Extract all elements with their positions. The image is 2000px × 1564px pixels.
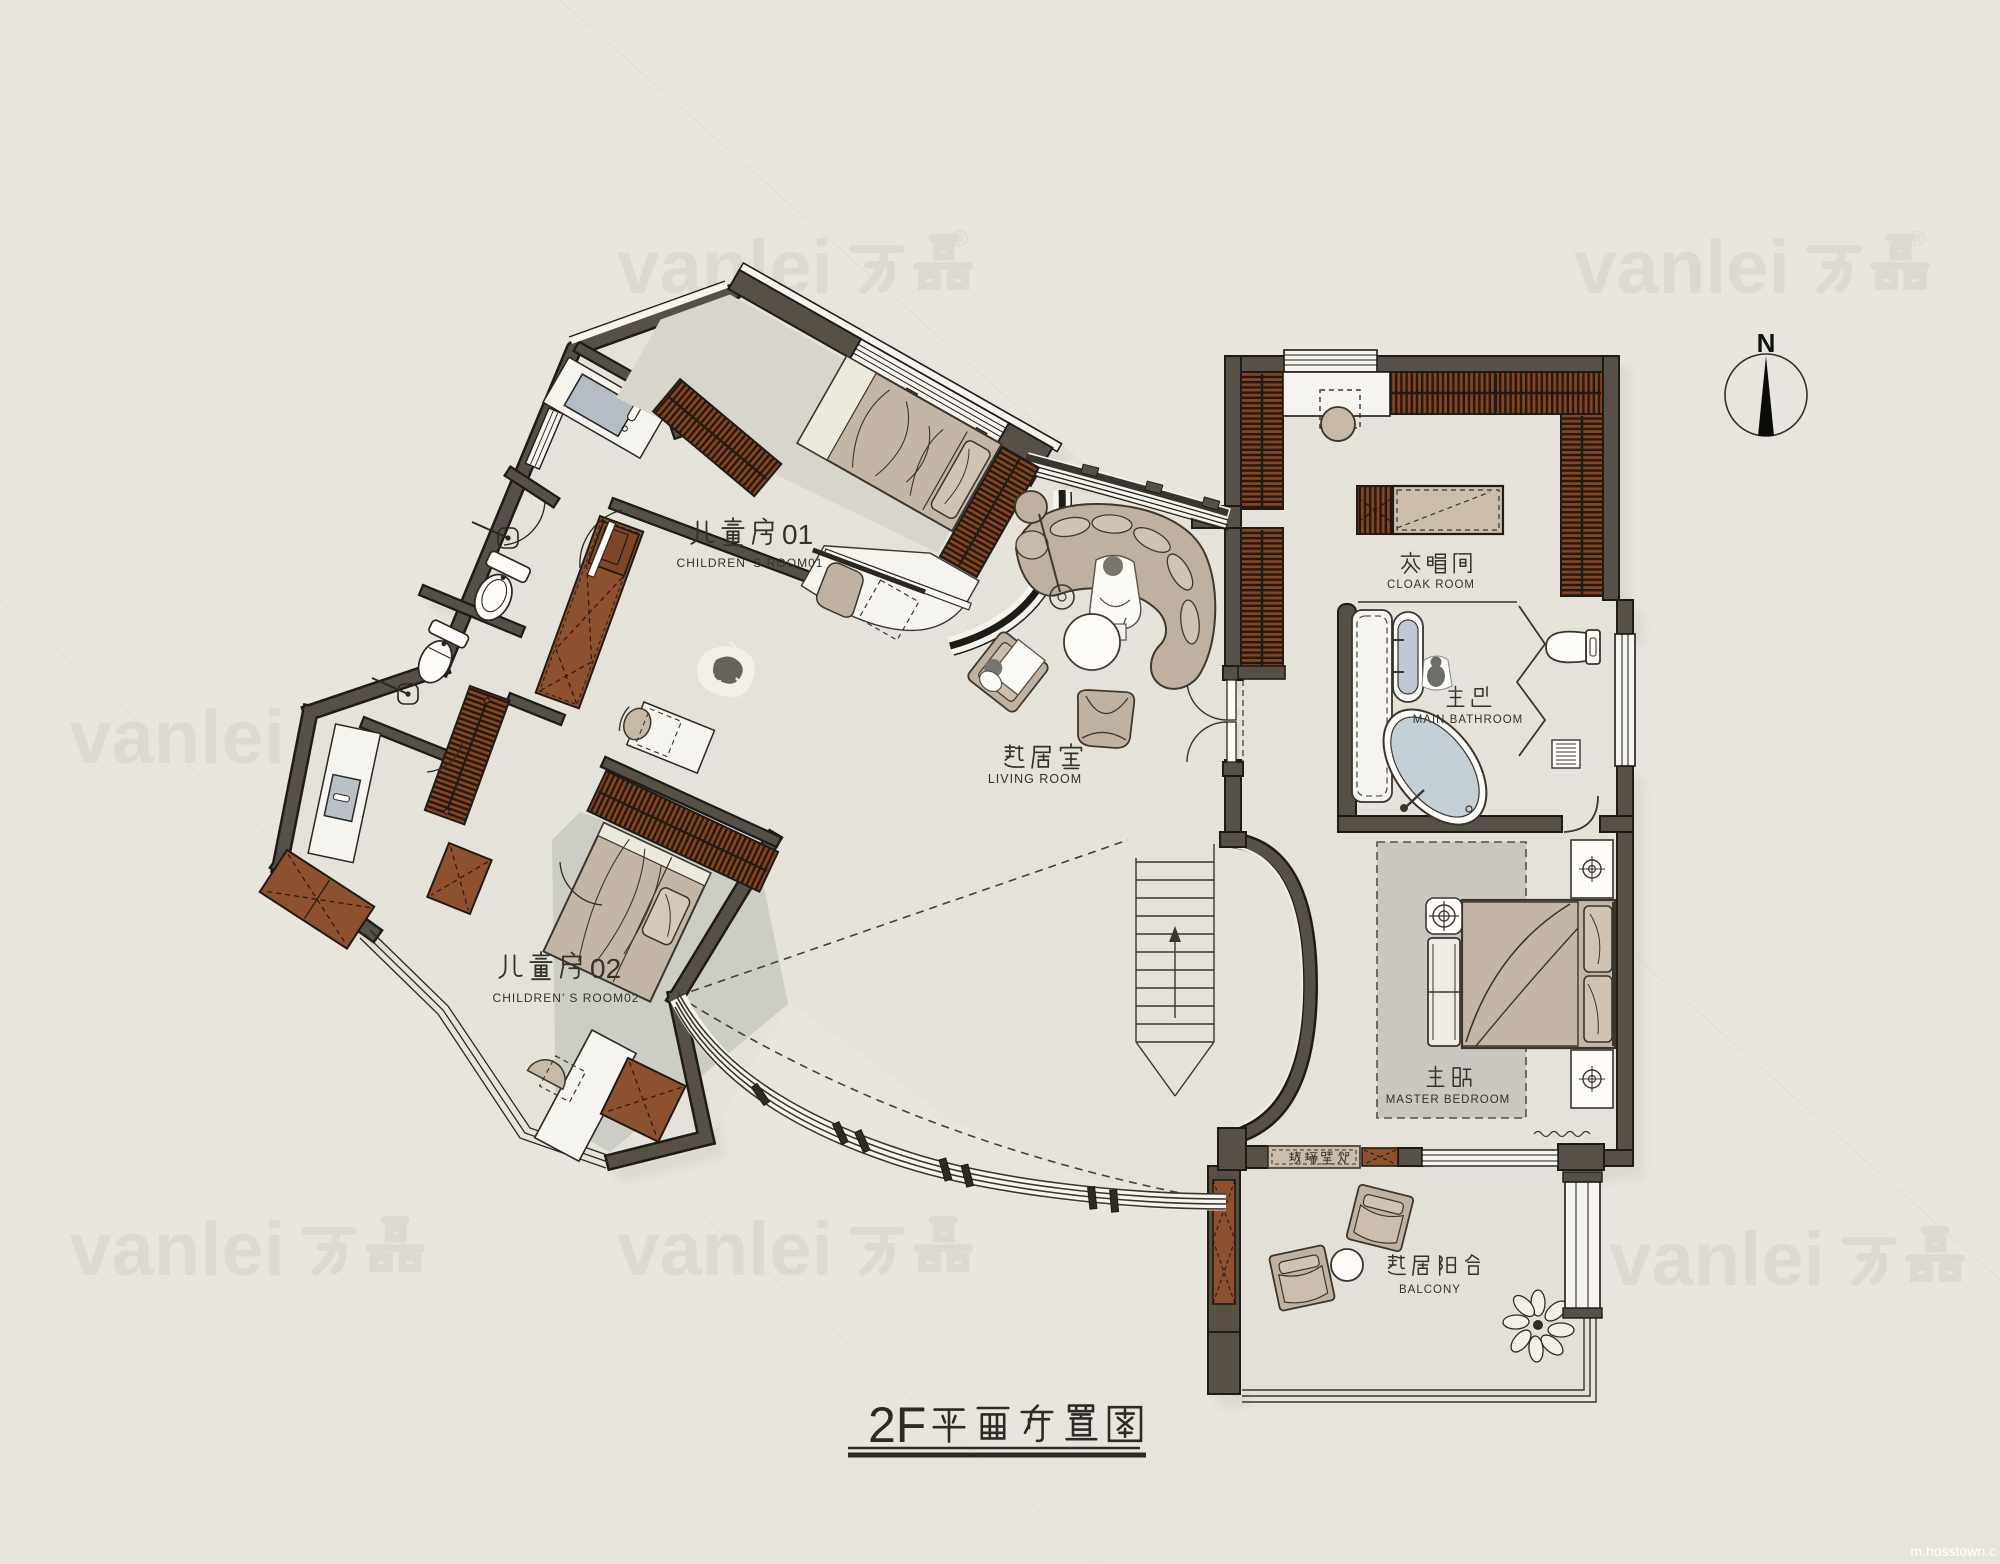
svg-text:MAIN BATHROOM: MAIN BATHROOM xyxy=(1413,714,1524,726)
svg-text:CHILDREN’ S ROOM02: CHILDREN’ S ROOM02 xyxy=(493,991,640,1005)
svg-text:vanlei: vanlei xyxy=(69,1207,284,1292)
svg-text:01: 01 xyxy=(782,519,813,550)
svg-text:vanlei: vanlei xyxy=(1609,1217,1824,1302)
svg-text:vanlei: vanlei xyxy=(617,1207,832,1292)
svg-text:CHILDREN’ S ROOM01: CHILDREN’ S ROOM01 xyxy=(677,556,824,570)
svg-text:BALCONY: BALCONY xyxy=(1399,1284,1461,1296)
svg-text:02: 02 xyxy=(590,953,621,984)
svg-text:2F: 2F xyxy=(868,1397,926,1453)
svg-text:LIVING ROOM: LIVING ROOM xyxy=(988,772,1082,786)
svg-text:®: ® xyxy=(1909,226,1925,251)
svg-text:CLOAK ROOM: CLOAK ROOM xyxy=(1387,579,1475,591)
svg-text:vanlei: vanlei xyxy=(69,695,284,780)
svg-text:vanlei: vanlei xyxy=(1574,225,1789,310)
svg-text:m.hosstown.c: m.hosstown.c xyxy=(1910,1543,1996,1559)
svg-text:®: ® xyxy=(952,226,968,251)
svg-text:MASTER BEDROOM: MASTER BEDROOM xyxy=(1386,1094,1511,1106)
